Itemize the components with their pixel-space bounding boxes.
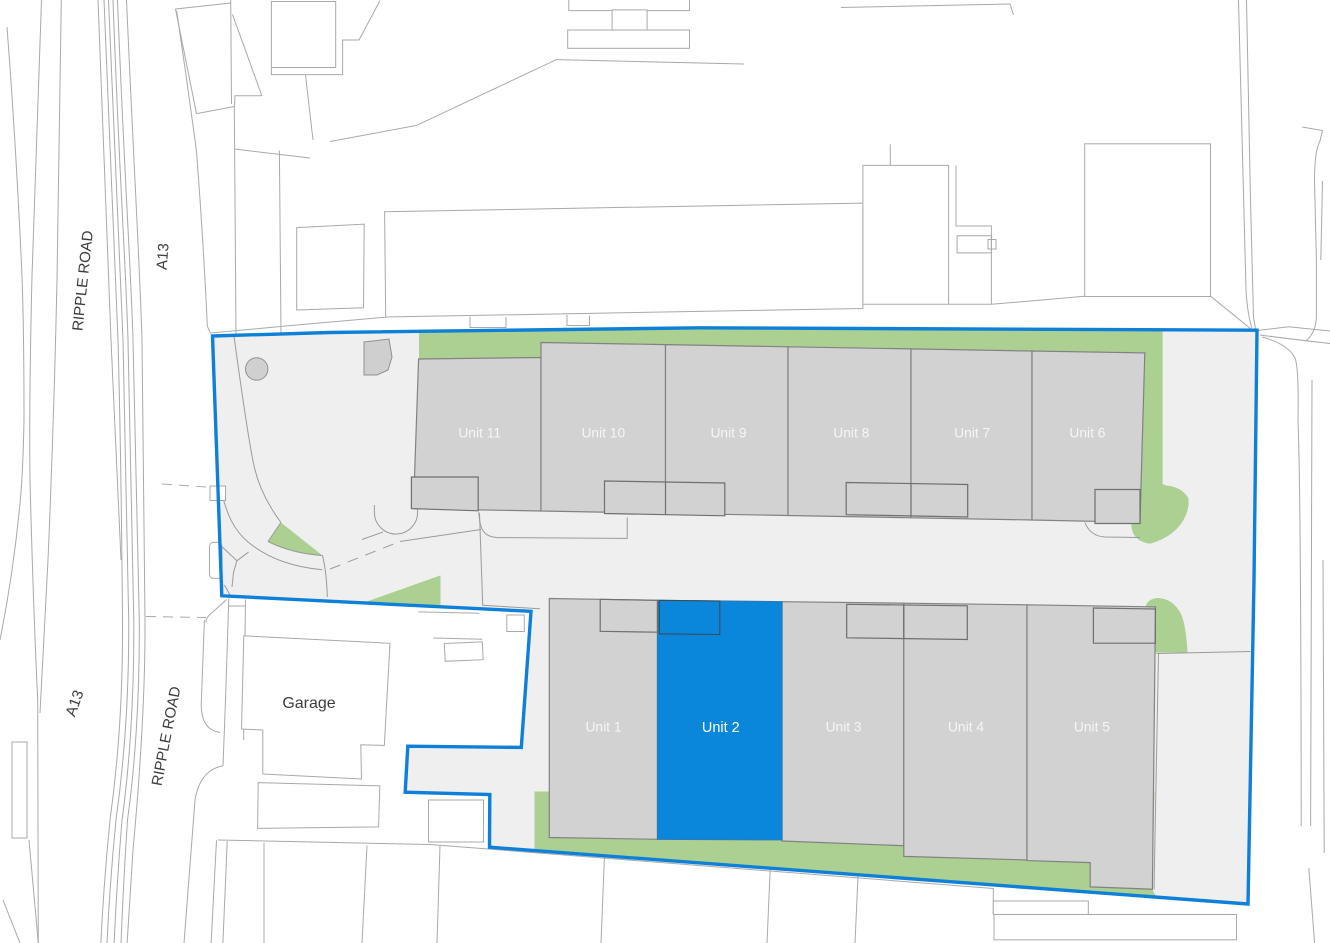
svg-text:Unit 10: Unit 10	[581, 426, 625, 441]
svg-text:RIPPLE ROAD: RIPPLE ROAD	[149, 685, 185, 787]
svg-text:Unit 4: Unit 4	[948, 720, 984, 735]
svg-text:Unit 6: Unit 6	[1069, 426, 1105, 441]
svg-text:Unit 11: Unit 11	[458, 426, 501, 441]
svg-text:Unit 3: Unit 3	[826, 720, 862, 735]
svg-text:Garage: Garage	[282, 695, 335, 712]
svg-text:Unit 8: Unit 8	[833, 426, 869, 441]
svg-text:Unit 7: Unit 7	[954, 426, 990, 441]
svg-text:A13: A13	[62, 688, 87, 719]
svg-text:Unit 1: Unit 1	[585, 720, 621, 735]
svg-text:Unit 5: Unit 5	[1074, 720, 1110, 735]
svg-text:RIPPLE ROAD: RIPPLE ROAD	[69, 230, 96, 332]
svg-text:Unit 2: Unit 2	[702, 720, 740, 736]
svg-text:A13: A13	[154, 243, 173, 271]
svg-text:Unit 9: Unit 9	[710, 426, 746, 441]
